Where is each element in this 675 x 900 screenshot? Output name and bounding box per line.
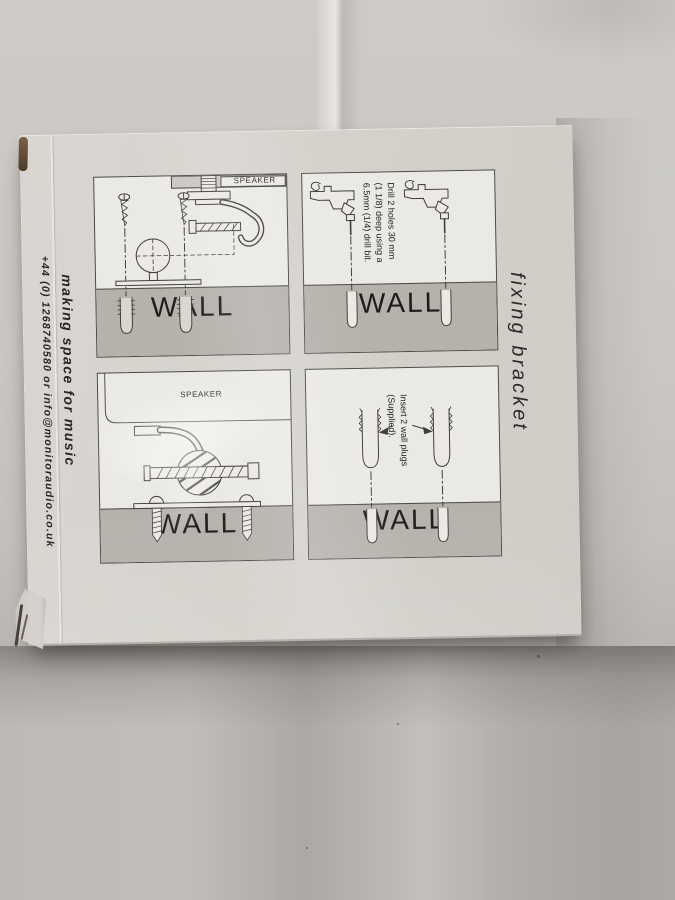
- panel-drill-holes: WALL: [301, 169, 498, 354]
- photo-stage: making space for music +44 (0) 126874058…: [0, 0, 675, 900]
- plug-instruction-text: Insert 2 wall plugs (Supplied).: [385, 394, 411, 488]
- panel-bracket-parts: WALL: [93, 173, 290, 358]
- bracket-and-fixings-diagram: [94, 174, 289, 356]
- tagline-text: making space for music: [59, 274, 79, 467]
- fabric-speck: [397, 723, 399, 725]
- panel-speaker-mounted: WALL: [97, 369, 294, 564]
- speaker-label: SPEAKER: [180, 389, 222, 400]
- bracket-box: making space for music +44 (0) 126874058…: [19, 125, 581, 646]
- product-name-text: fixing bracket: [505, 272, 531, 432]
- fabric-crease: [315, 0, 361, 134]
- drill-holes-diagram: [302, 170, 497, 352]
- panel-insert-plugs: WALL: [305, 365, 502, 560]
- speaker-label: SPEAKER: [222, 175, 287, 186]
- fabric-speck: [306, 847, 308, 849]
- box-corner-slot: [18, 137, 28, 171]
- drill-instruction-text: Drill 2 holes 30 mm (1 1/8) deep using a…: [360, 182, 398, 289]
- fabric-speck: [537, 655, 540, 658]
- instruction-panel-grid: WALL: [93, 169, 502, 563]
- fabric-foreground: [0, 646, 675, 900]
